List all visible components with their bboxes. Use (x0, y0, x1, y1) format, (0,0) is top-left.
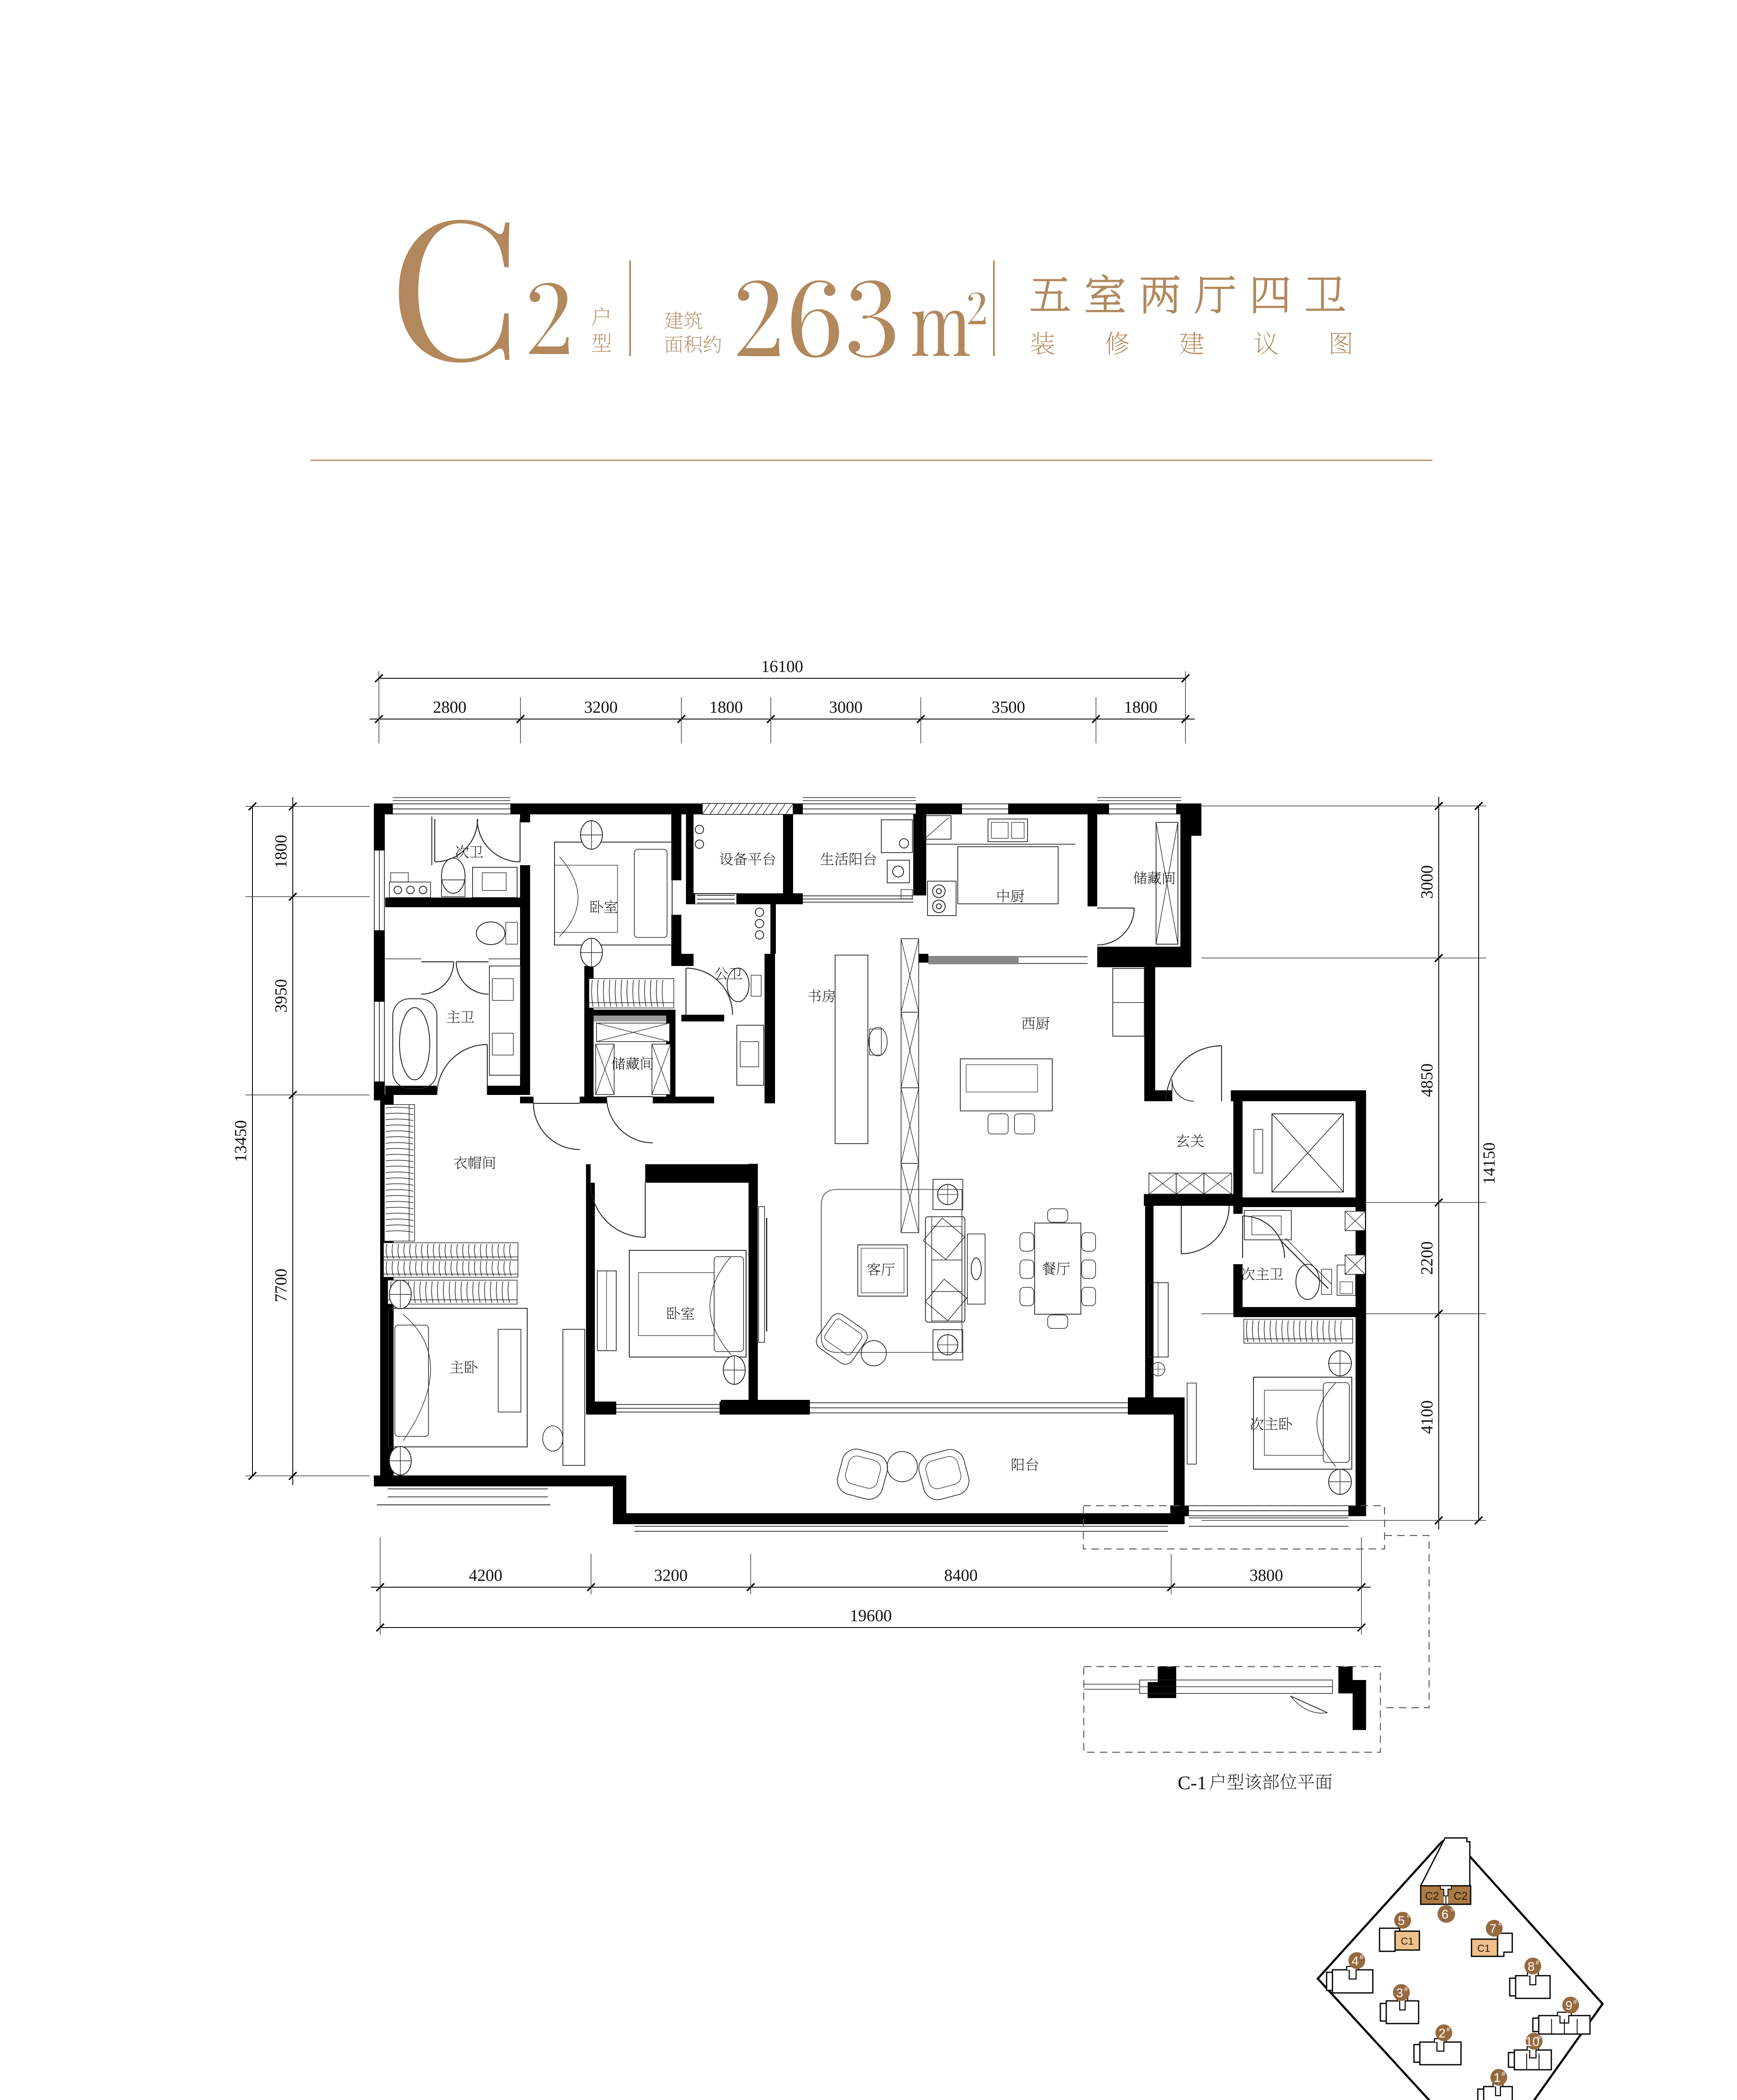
svg-text:C-1: C-1 (1178, 1772, 1207, 1793)
svg-text:4850: 4850 (1417, 1063, 1436, 1097)
svg-text:C2: C2 (1453, 1890, 1467, 1902)
svg-text:16100: 16100 (761, 657, 803, 676)
svg-text:4: 4 (1352, 1954, 1359, 1968)
svg-text:#: # (1360, 1954, 1364, 1961)
svg-text:#: # (1536, 1959, 1540, 1966)
svg-text:3500: 3500 (992, 698, 1025, 717)
svg-text:#: # (1451, 1906, 1455, 1913)
svg-text:#: # (1502, 2071, 1506, 2078)
svg-text:#: # (1537, 2034, 1541, 2042)
svg-text:#: # (1574, 1998, 1577, 2005)
svg-text:7: 7 (1490, 1922, 1497, 1936)
svg-text:4100: 4100 (1417, 1400, 1436, 1434)
svg-text:1: 1 (1494, 2071, 1501, 2085)
svg-text:1800: 1800 (710, 698, 743, 717)
svg-text:9: 9 (1566, 1999, 1573, 2013)
svg-text:14150: 14150 (1479, 1142, 1498, 1184)
svg-text:#: # (1404, 1986, 1408, 1993)
svg-text:7700: 7700 (271, 1269, 290, 1302)
svg-text:3200: 3200 (584, 698, 618, 717)
svg-text:3000: 3000 (1417, 865, 1436, 899)
svg-text:2800: 2800 (433, 698, 467, 717)
svg-text:C1: C1 (1401, 1936, 1414, 1947)
svg-text:#: # (1498, 1920, 1502, 1927)
svg-text:8: 8 (1528, 1960, 1535, 1974)
svg-text:1800: 1800 (1124, 698, 1158, 717)
svg-text:#: # (1407, 1912, 1411, 1919)
svg-text:6: 6 (1442, 1908, 1449, 1921)
svg-text:13450: 13450 (231, 1120, 250, 1162)
svg-text:3950: 3950 (271, 979, 290, 1013)
svg-text:3: 3 (1396, 1986, 1403, 2000)
svg-text:1800: 1800 (271, 835, 290, 869)
svg-text:3200: 3200 (654, 1566, 688, 1585)
svg-text:8400: 8400 (944, 1566, 978, 1585)
svg-text:C2: C2 (1425, 1890, 1439, 1902)
svg-text:2200: 2200 (1417, 1242, 1436, 1275)
svg-text:#: # (1447, 2026, 1451, 2033)
svg-text:19600: 19600 (850, 1606, 892, 1625)
svg-text:C1: C1 (1477, 1943, 1490, 1954)
svg-text:5: 5 (1398, 1914, 1405, 1928)
svg-text:3800: 3800 (1250, 1566, 1283, 1585)
svg-text:4200: 4200 (469, 1566, 502, 1585)
svg-text:3000: 3000 (829, 698, 863, 717)
svg-text:2: 2 (1439, 2026, 1446, 2040)
